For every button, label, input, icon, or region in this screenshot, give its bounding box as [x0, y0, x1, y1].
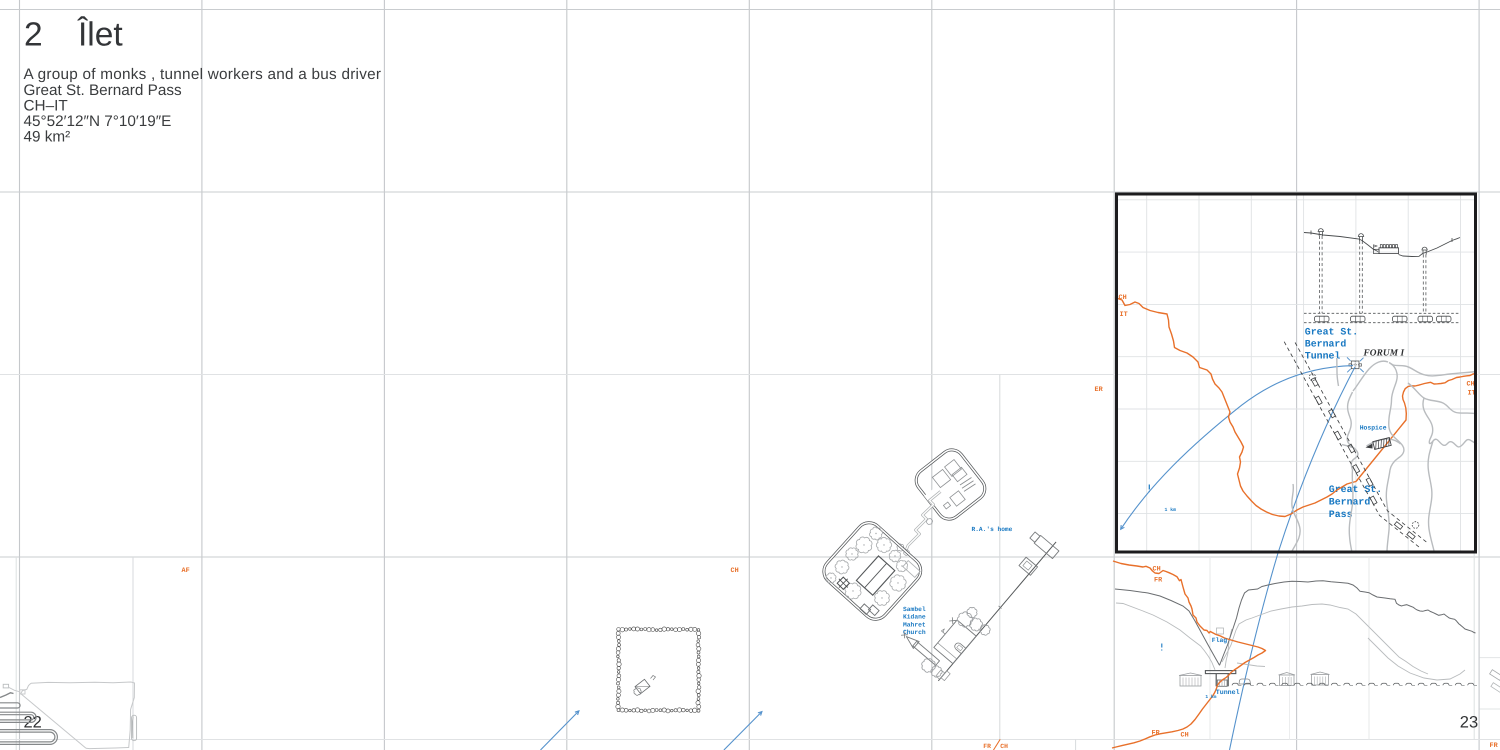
- svg-text:Bernard: Bernard: [1305, 339, 1347, 350]
- svg-text:Îlet: Îlet: [77, 16, 123, 54]
- svg-text:Pass: Pass: [1329, 509, 1353, 520]
- svg-text:CH: CH: [1119, 294, 1127, 302]
- svg-text:Great St.: Great St.: [1305, 327, 1358, 338]
- svg-text:Mahret: Mahret: [903, 621, 926, 628]
- svg-text:2: 2: [24, 17, 43, 54]
- svg-text:49 km²: 49 km²: [24, 128, 71, 145]
- svg-text:FR: FR: [1490, 742, 1499, 750]
- svg-text:CH: CH: [731, 567, 739, 575]
- svg-text:Flag: Flag: [1212, 637, 1228, 644]
- svg-text:Tunnel: Tunnel: [1216, 689, 1240, 696]
- svg-text:Sambel: Sambel: [903, 606, 926, 613]
- svg-text:FORUM I: FORUM I: [1363, 349, 1405, 359]
- svg-text:FR: FR: [1152, 730, 1161, 738]
- svg-text:AF: AF: [182, 567, 190, 575]
- svg-text:Hospice: Hospice: [1360, 425, 1387, 432]
- svg-text:ER: ER: [1095, 386, 1104, 394]
- svg-text:FR: FR: [1154, 577, 1163, 585]
- svg-text:1 km: 1 km: [1165, 507, 1177, 513]
- svg-text:1 km: 1 km: [1205, 694, 1216, 700]
- svg-text:CH–IT: CH–IT: [24, 97, 68, 114]
- svg-text:CH: CH: [1467, 381, 1475, 389]
- svg-text:CH: CH: [1181, 732, 1189, 740]
- svg-text:IT: IT: [1120, 311, 1128, 319]
- svg-text:R.A.'s home: R.A.'s home: [972, 526, 1013, 533]
- svg-text:23: 23: [1460, 714, 1478, 732]
- svg-text:Great St. Bernard Pass: Great St. Bernard Pass: [24, 82, 182, 99]
- svg-text:Bernard: Bernard: [1329, 497, 1371, 508]
- svg-text:FR: FR: [983, 743, 991, 750]
- svg-text:Tunnel: Tunnel: [1305, 351, 1341, 362]
- svg-text:CH: CH: [1153, 566, 1161, 574]
- svg-text:CH: CH: [1000, 743, 1008, 750]
- svg-text:Kidane: Kidane: [903, 614, 926, 621]
- svg-text:45°52′12″N 7°10′19″E: 45°52′12″N 7°10′19″E: [24, 113, 172, 130]
- svg-text:A group of monks , tunnel work: A group of monks , tunnel workers and a …: [24, 66, 382, 83]
